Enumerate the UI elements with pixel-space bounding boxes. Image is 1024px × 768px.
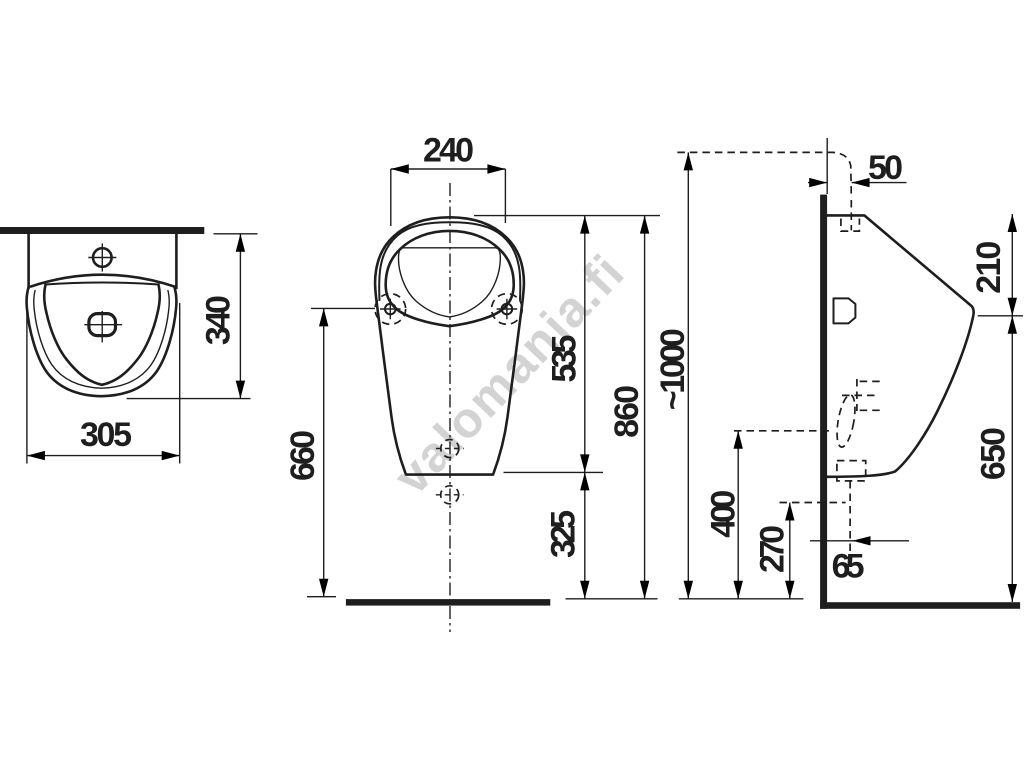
svg-text:210: 210 bbox=[970, 241, 1008, 294]
svg-text:660: 660 bbox=[284, 430, 322, 481]
svg-text:65: 65 bbox=[832, 547, 865, 585]
svg-text:650: 650 bbox=[974, 427, 1012, 480]
svg-text:535: 535 bbox=[545, 335, 583, 383]
svg-text:860: 860 bbox=[608, 385, 646, 438]
svg-text:~1000: ~1000 bbox=[654, 328, 692, 410]
svg-text:340: 340 bbox=[200, 295, 238, 345]
svg-text:400: 400 bbox=[704, 490, 742, 538]
svg-text:270: 270 bbox=[753, 525, 791, 573]
svg-text:325: 325 bbox=[544, 510, 582, 558]
svg-text:305: 305 bbox=[80, 416, 132, 454]
svg-text:50: 50 bbox=[868, 149, 903, 187]
svg-text:240: 240 bbox=[423, 132, 474, 170]
